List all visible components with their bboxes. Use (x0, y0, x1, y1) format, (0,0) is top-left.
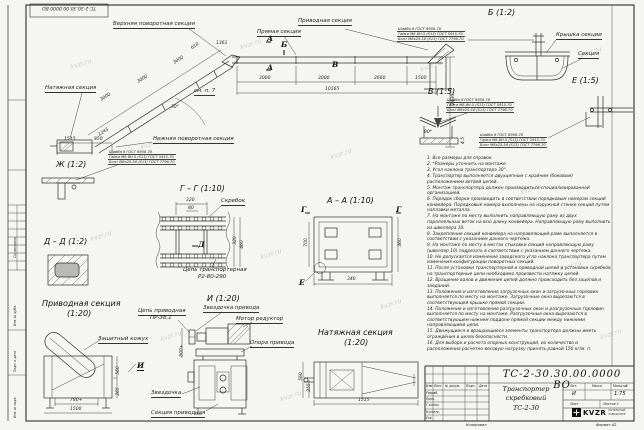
view-title-zh: Ж (1:2) (56, 160, 86, 169)
tb-col: Дата (479, 384, 487, 388)
tb-mass-header: Масса (592, 384, 602, 388)
note: 14. Положения и изготовления разгрузочны… (427, 307, 611, 329)
tb-row: Разраб. (426, 391, 438, 395)
dim: 460 (240, 240, 245, 249)
label-protective-casing: Защитный кожух (98, 336, 148, 344)
dim: 265 (116, 387, 121, 396)
tb-sheet: Лист (570, 402, 579, 406)
view-title-tension-section: Натяжная секция (318, 328, 393, 337)
kvzr-logo-text: KVZR (583, 409, 606, 417)
note: 6. Порядок сборки производить в соответс… (427, 197, 611, 214)
dim: 1500 (415, 76, 426, 81)
label-tension-section: Натяжная секция (45, 85, 96, 93)
dim: 320 (186, 198, 195, 203)
section-mark-g: Г (396, 205, 401, 214)
note: 2. *Размеры уточнить на монтаже. (427, 162, 611, 168)
fastener-note: Шайба 8 ГОСТ 6958-78Гайка М8-6Н.5 (S13) … (397, 27, 465, 42)
dim: 1500 (70, 407, 81, 412)
section-mark-a: А (267, 34, 273, 43)
note: 11. После установки транспортерной и при… (427, 266, 611, 277)
dim: 80* (424, 130, 432, 135)
dim-angle: 30° (171, 105, 179, 110)
note: 9. На монтаже по месту в местах стыковки… (427, 243, 611, 254)
label-upper-turn-section: Верхняя поворотная секция (113, 21, 195, 29)
note: 1. Все размеры для справок. (427, 156, 611, 162)
label-drive-section: Приводная секция (298, 18, 352, 26)
technical-notes: 1. Все размеры для справок. 2. *Размеры … (427, 156, 611, 353)
tb-col: Подп. (466, 384, 475, 388)
label-drive-chain-model: ПР-38,1 (150, 315, 172, 321)
note: 15. Движущиеся и вращающиеся элементы тр… (427, 329, 611, 340)
tb-row: Н.контр. (426, 410, 440, 414)
tb-row: Т.контр. (426, 403, 439, 407)
detail-zh-linework (42, 164, 120, 199)
section-mark-a: А (267, 63, 273, 72)
tb-col: Изм. (426, 384, 433, 388)
inverted-doc-number: ТС-2-30.30.00.0000 ВО (31, 5, 107, 10)
note: 3. Угол наклона транспортера 30°. (427, 168, 611, 174)
dim: 4,5 (461, 137, 466, 144)
view-title-v: В (1:5) (428, 87, 455, 96)
drawing-sheet: kvzr.ru kvzr.ru kvzr.ru kvzr.ru kvzr.ru … (0, 0, 644, 430)
section-mark-g: Г (301, 205, 306, 214)
label-motor-reducer: Мотор редуктор (236, 316, 283, 324)
label-section-cover: Крышка секции (556, 32, 602, 40)
dim: 340 (347, 277, 356, 282)
strip-label: Инв. № подл. (13, 397, 17, 418)
tb-scale-value: 1:75 (614, 391, 626, 397)
view-title-e: Е (1:5) (572, 76, 599, 85)
label-conveyor-chain-model: Р2-80-290 (198, 274, 226, 280)
dim: 1515 (64, 137, 75, 142)
label-drive-support: Опора привода (250, 340, 294, 348)
tb-col: Лист (434, 384, 442, 388)
tb-col: № докум. (445, 384, 460, 388)
section-mark-d: Д (198, 240, 205, 249)
strip-label: Подп. и дата (13, 351, 17, 372)
tb-lit-value: И (572, 391, 576, 397)
dim: 560 (299, 372, 304, 381)
dim-total: 10165 (325, 87, 339, 92)
copied-label: Копировал (466, 423, 487, 427)
part-name: Транспортер (489, 385, 563, 393)
dim: 560 (116, 366, 121, 375)
view-title-aa: А – А (1:10) (327, 196, 374, 205)
view-scale-tension-section: (1:20) (344, 338, 368, 347)
dim: 80 (188, 206, 194, 211)
label-section: Секция (578, 51, 599, 59)
dim: 1515 (358, 398, 369, 403)
tb-scale-header: Масштаб (613, 384, 628, 388)
dim-incline: 1361 (216, 41, 227, 46)
format-label: Формат А2 (596, 423, 616, 427)
section-mark-b: Б (281, 40, 287, 49)
dim: 3000 (259, 76, 270, 81)
fastener-note: Шайба 8 ГОСТ 6958-78Гайка М8-6Н.5 (S13) … (446, 98, 514, 113)
section-aa-linework (305, 213, 401, 286)
tb-row: Утв. (426, 416, 433, 420)
view-title-b: Б (1:2) (488, 8, 515, 17)
label-straight-section: Прямая секция (257, 29, 301, 37)
note: 10. Не допускается изменение заводского … (427, 255, 611, 266)
view-title-gg: Г – Г (1:10) (180, 184, 225, 193)
dim: 2660 (374, 76, 385, 81)
tb-row: Пров. (426, 397, 435, 401)
detail-mark-e: Е (299, 278, 305, 287)
dim: 360 (398, 238, 403, 247)
label-drive-section-part: Секция приводная (151, 410, 205, 418)
part-designation: ТС-2-30 (489, 404, 563, 412)
tb-lit-header: Лит. (570, 384, 577, 388)
dim: 800+ (180, 344, 185, 356)
label-lower-turn-section: Нижняя поворотная секция (153, 136, 234, 144)
section-mark-v: В (332, 60, 338, 69)
strip-label: Согласовано (13, 237, 17, 258)
view-title-i: И (1:20) (207, 294, 240, 303)
kvzr-logo-subtext: КОТЕЛЬНЫЙ ЗАВОД КВЗР (608, 409, 625, 415)
detail-b-linework (468, 33, 583, 80)
detail-e-linework (548, 96, 633, 138)
label-scraper: Скребок (221, 198, 245, 206)
note: 7. На монтаже по месту выполнить направл… (427, 214, 611, 231)
note: 16. Для выбора и расчета опорных констру… (427, 341, 611, 352)
label-drive-sprocket: Звездочка привода (203, 305, 259, 313)
fastener-note: Шайба 8 ГОСТ 6958-78Гайка М8-6Н.5 (S13) … (479, 133, 547, 148)
kvzr-logo: KVZR КОТЕЛЬНЫЙ ЗАВОД КВЗР (572, 408, 625, 417)
view-i-linework (178, 312, 252, 414)
note: 4. Транспортер выполняется двухцепным с … (427, 174, 611, 185)
dim: 850 (94, 137, 103, 142)
view-mark-i: И (137, 361, 144, 371)
view-title-drive-section: Приводная секция (42, 299, 121, 308)
dim: 3000 (318, 76, 329, 81)
section-gg-linework (156, 202, 240, 268)
strip-label: Инв. № дубл. (13, 305, 17, 326)
label-see-note: см. п. 7 (194, 88, 215, 96)
part-name: скребковый (489, 394, 563, 402)
label-sprocket: Звездочка (151, 390, 181, 398)
view-scale-drive-section: (1:20) (67, 309, 91, 318)
fastener-note: Шайба 8 ГОСТ 6958-78Гайка М8-6Н.5 (S13) … (108, 150, 176, 165)
dim: 780+ (70, 398, 82, 403)
note: 13. Положения и изготовления загрузочных… (427, 290, 611, 307)
label-conveyor-chain: Цепь транспортерная (183, 267, 247, 273)
note: 5. Монтаж транспортера должен производит… (427, 186, 611, 197)
kvzr-logo-icon (572, 408, 581, 417)
note: 12. Вращение валов и движение цепей долж… (427, 278, 611, 289)
dim: 700 (304, 238, 309, 247)
dim: 255 (307, 383, 312, 392)
dim: 320 (233, 236, 238, 245)
section-dd-linework (48, 255, 88, 285)
tb-sheets: Листов 1 (603, 402, 619, 406)
note: 8. Закрепление секций конвейера на напра… (427, 232, 611, 243)
view-title-dd: Д – Д (1:2) (44, 237, 87, 246)
main-view-linework (50, 28, 455, 155)
